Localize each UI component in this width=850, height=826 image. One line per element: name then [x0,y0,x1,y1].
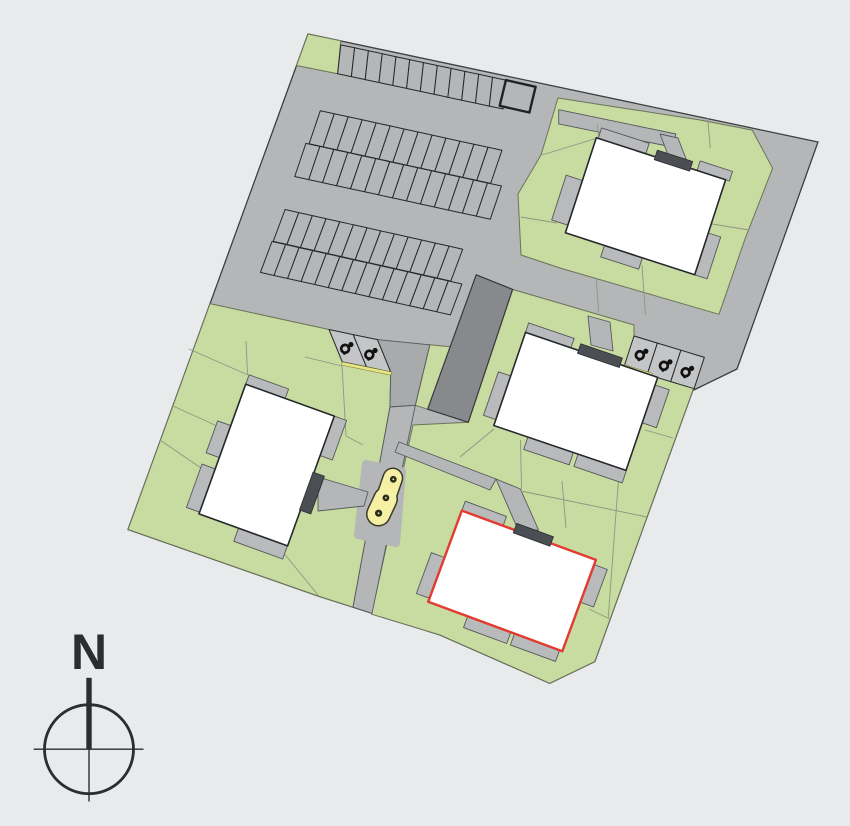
svg-text:N: N [71,624,107,680]
